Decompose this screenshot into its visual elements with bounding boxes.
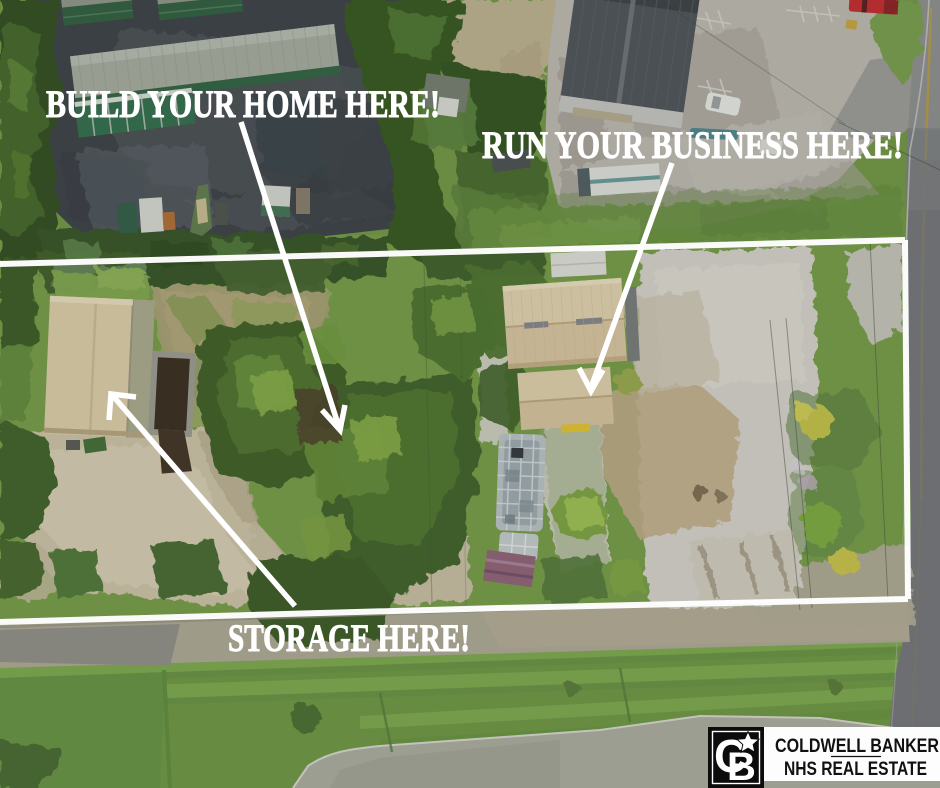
svg-text:RUN YOUR BUSINESS HERE!: RUN YOUR BUSINESS HERE! xyxy=(482,124,903,167)
svg-text:STORAGE HERE!: STORAGE HERE! xyxy=(228,617,470,660)
svg-text:COLDWELL BANKER: COLDWELL BANKER xyxy=(775,736,939,757)
svg-text:NHS REAL ESTATE: NHS REAL ESTATE xyxy=(784,759,927,780)
svg-text:BUILD YOUR HOME HERE!: BUILD YOUR HOME HERE! xyxy=(46,83,440,126)
